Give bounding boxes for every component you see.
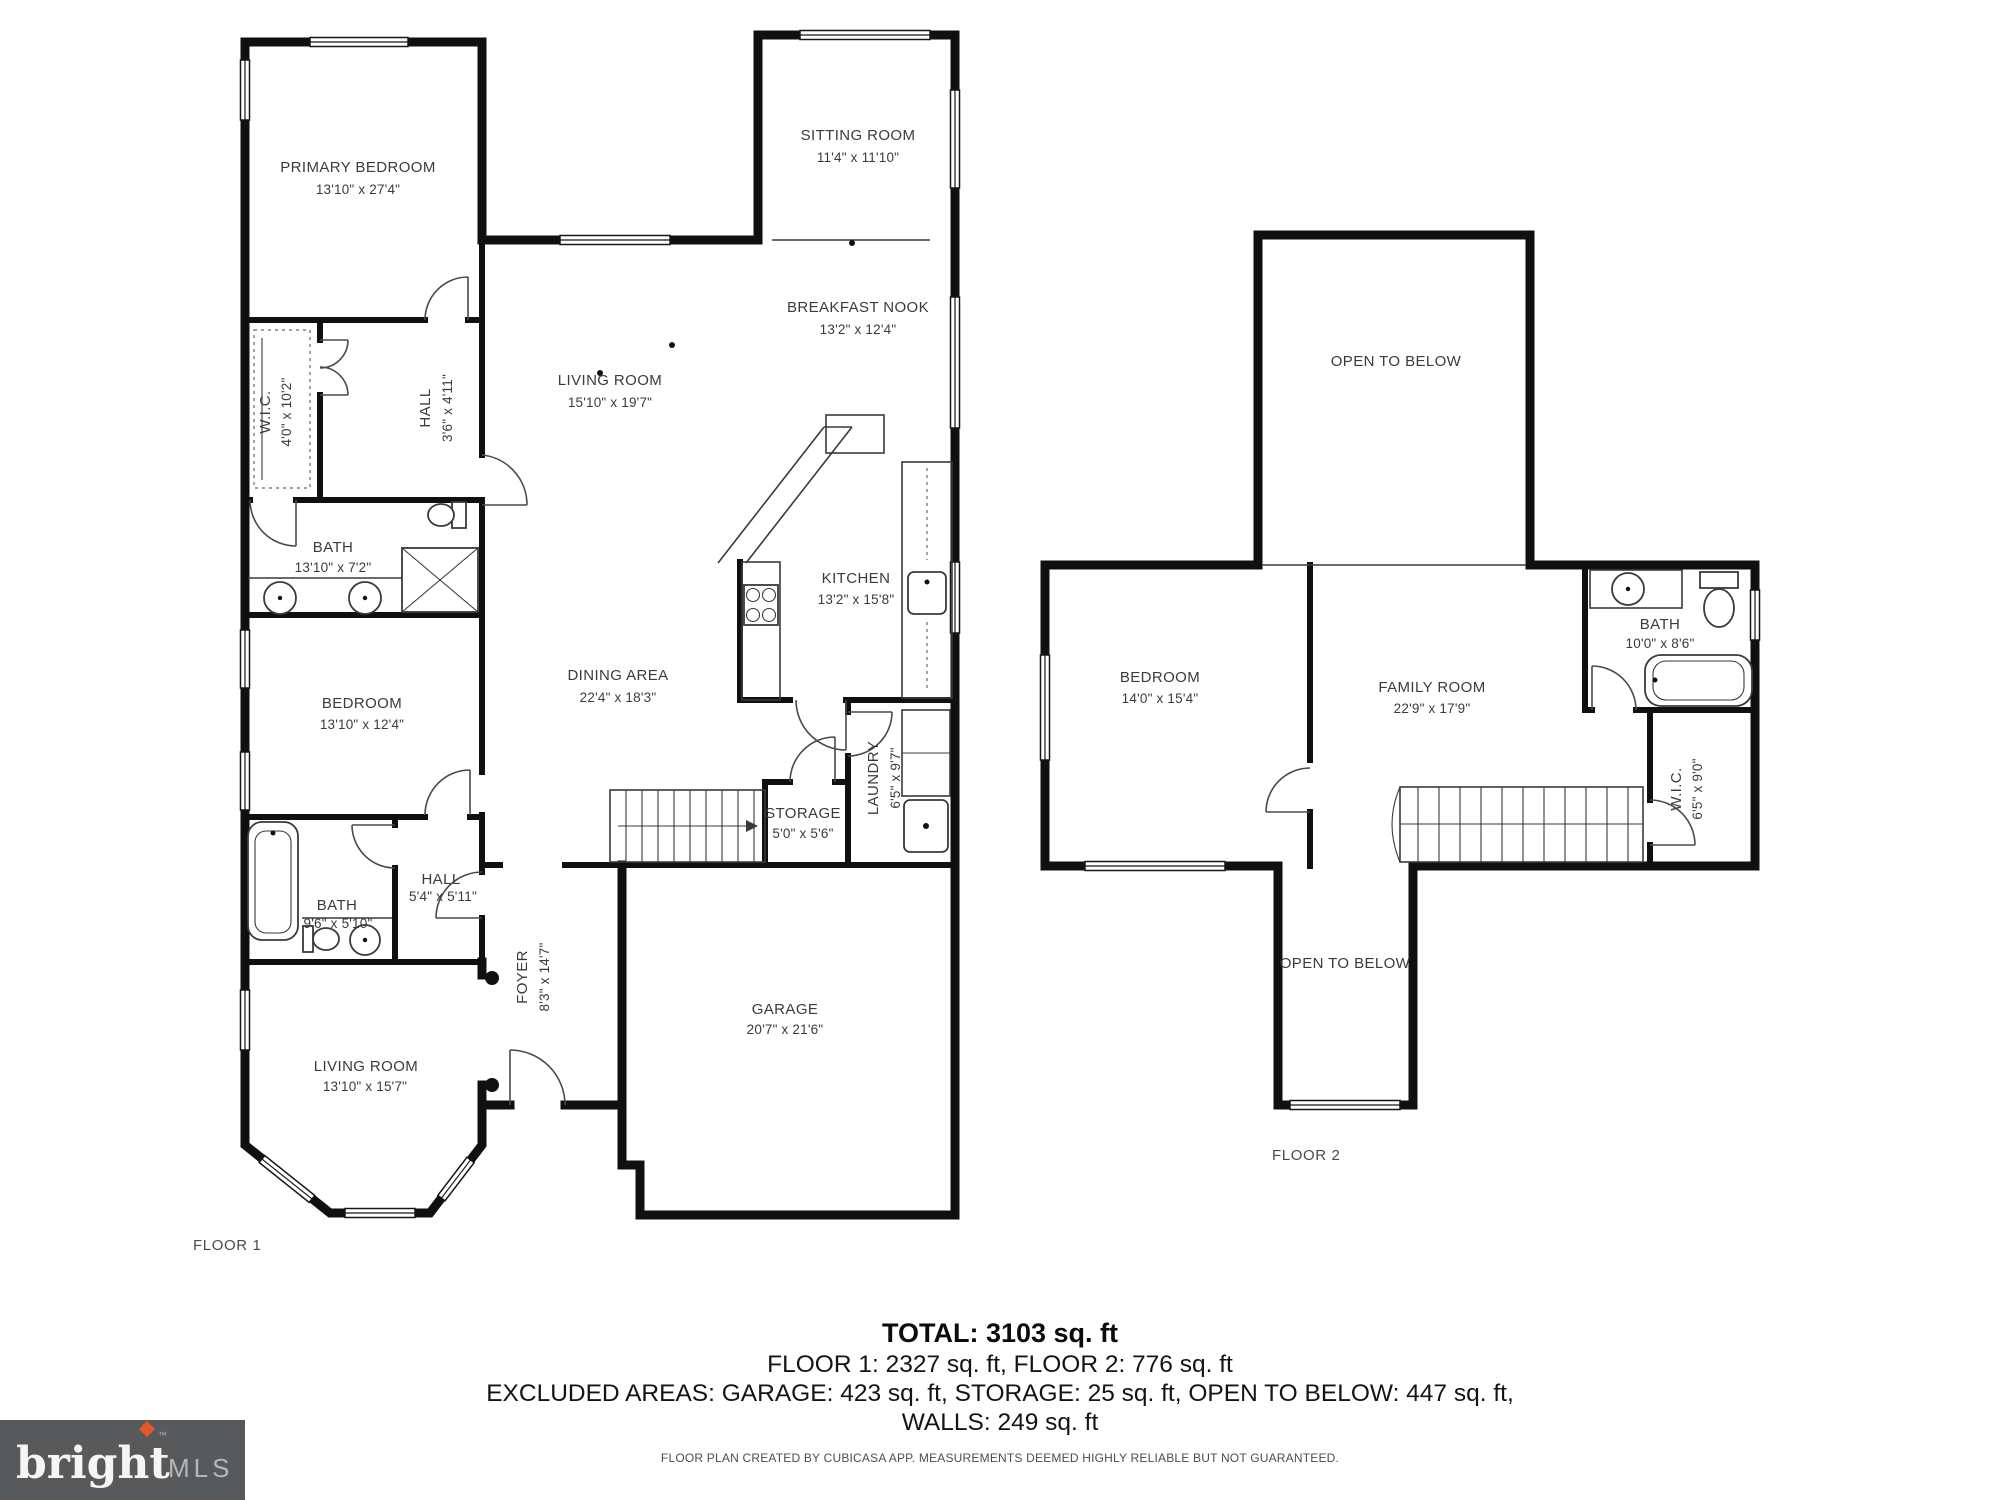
summary-total: TOTAL: 3103 sq. ft	[882, 1318, 1118, 1348]
room-dims-sitting-room: 11'4" x 11'10"	[817, 150, 899, 165]
room-dims-living-room-front: 13'10" x 15'7"	[323, 1079, 407, 1094]
floor1-exterior-walls	[245, 35, 955, 1215]
door-arc	[1592, 666, 1636, 710]
floorplan-svg: PRIMARY BEDROOM 13'10" x 27'4" SITTING R…	[0, 0, 2000, 1500]
kitchen-fixtures	[718, 415, 952, 700]
door-arc	[425, 770, 470, 815]
summary-walls: WALLS: 249 sq. ft	[902, 1409, 1099, 1436]
area-summary: TOTAL: 3103 sq. ft FLOOR 1: 2327 sq. ft,…	[486, 1318, 1514, 1465]
room-label-wic-f2: W.I.C.	[1668, 767, 1685, 810]
door-arc	[796, 700, 846, 750]
opening-post	[485, 1078, 499, 1092]
room-dims-bath-f2: 10'0" x 8'6"	[1626, 636, 1695, 651]
room-label-foyer: FOYER	[514, 950, 531, 1004]
bathtub-symbol	[1645, 655, 1752, 706]
bathtub-symbol	[248, 822, 298, 940]
room-label-bedroom: BEDROOM	[322, 695, 402, 712]
room-label-breakfast-nook: BREAKFAST NOOK	[787, 299, 929, 316]
door-arc-entry	[510, 1050, 565, 1105]
door-arc-double	[320, 340, 348, 395]
room-label-sitting-room: SITTING ROOM	[801, 127, 916, 144]
plan-dot	[849, 240, 855, 246]
logo-brand-text: bright	[16, 1438, 170, 1489]
floor1-plan: PRIMARY BEDROOM 13'10" x 27'4" SITTING R…	[193, 31, 960, 1255]
room-dims-dining-area: 22'4" x 18'3"	[580, 690, 657, 705]
room-label-garage: GARAGE	[752, 1001, 819, 1018]
room-label-primary-bedroom: PRIMARY BEDROOM	[280, 159, 435, 176]
room-dims-breakfast-nook: 13'2" x 12'4"	[820, 322, 897, 337]
stove-symbol	[744, 585, 778, 625]
room-dims-laundry: 6'5" x 9'7"	[888, 747, 903, 808]
room-dims-storage: 5'0" x 5'6"	[772, 826, 833, 841]
room-dims-primary-bedroom: 13'10" x 27'4"	[316, 182, 400, 197]
room-label-family-room: FAMILY ROOM	[1378, 679, 1485, 696]
room-dims-family-room: 22'9" x 17'9"	[1394, 701, 1471, 716]
plan-dot	[669, 342, 675, 348]
door-arc	[790, 737, 835, 782]
room-label-living-room: LIVING ROOM	[558, 372, 662, 389]
logo-mls-text: MLS	[168, 1453, 233, 1483]
room-label-hall-lower: HALL	[421, 871, 460, 888]
summary-excluded: EXCLUDED AREAS: GARAGE: 423 sq. ft, STOR…	[486, 1380, 1514, 1407]
primary-bath-fixtures	[248, 502, 478, 614]
room-label-bedroom-f2: BEDROOM	[1120, 669, 1200, 686]
disclaimer-text: FLOOR PLAN CREATED BY CUBICASA APP. MEAS…	[661, 1451, 1339, 1465]
room-label-kitchen: KITCHEN	[822, 570, 891, 587]
room-dims-hall-upper: 3'6" x 4'11"	[440, 374, 455, 442]
room-dims-kitchen: 13'2" x 15'8"	[818, 592, 895, 607]
range-hood-symbol	[826, 415, 884, 453]
room-label-wic: W.I.C.	[257, 390, 274, 433]
door-arc	[482, 455, 527, 505]
room-dims-bedroom: 13'10" x 12'4"	[320, 717, 404, 732]
room-dims-foyer: 8'3" x 14'7"	[537, 943, 552, 1012]
room-label-bath-f2: BATH	[1640, 616, 1681, 633]
room-label-storage: STORAGE	[765, 805, 841, 822]
logo-tm: ™	[158, 1430, 167, 1440]
floor1-windows	[241, 31, 960, 1218]
room-dims-hall-lower: 5'4" x 5'11"	[409, 889, 477, 904]
room-label-dining-area: DINING AREA	[567, 667, 668, 684]
room-label-bath-primary: BATH	[313, 539, 354, 556]
room-dims-living-room: 15'10" x 19'7"	[568, 395, 652, 410]
room-dims-bath-primary: 13'10" x 7'2"	[295, 560, 372, 575]
stairs-up-symbol	[610, 790, 765, 862]
room-dims-wic: 4'0" x 10'2"	[279, 378, 294, 447]
room-label-laundry: LAUNDRY	[865, 741, 882, 815]
floor1-label: FLOOR 1	[193, 1237, 261, 1254]
floor2-plan: OPEN TO BELOW BEDROOM 14'0" x 15'4" FAMI…	[1041, 235, 1760, 1164]
bright-mls-logo: bright ™ MLS	[0, 1420, 245, 1500]
floor2-stairs-symbol	[1392, 787, 1643, 862]
laundry-fixtures	[902, 710, 950, 852]
room-label-living-room-front: LIVING ROOM	[314, 1058, 418, 1075]
room-label-hall-upper: HALL	[417, 388, 434, 427]
room-dims-garage: 20'7" x 21'6"	[747, 1022, 824, 1037]
room-label-open-to-below-top: OPEN TO BELOW	[1331, 353, 1462, 370]
room-label-bath-lower: BATH	[317, 897, 358, 914]
floor2-label: FLOOR 2	[1272, 1147, 1340, 1164]
door-arc	[1266, 768, 1310, 812]
room-label-open-to-below-bottom: OPEN TO BELOW	[1280, 955, 1411, 972]
summary-floors: FLOOR 1: 2327 sq. ft, FLOOR 2: 776 sq. f…	[767, 1351, 1233, 1378]
room-dims-bath-lower: 9'6" x 5'10"	[304, 916, 373, 931]
room-dims-bedroom-f2: 14'0" x 15'4"	[1122, 691, 1199, 706]
shower-symbol	[402, 548, 478, 612]
kitchen-sink-symbol	[908, 572, 946, 614]
opening-post	[485, 971, 499, 985]
toilet-symbol	[428, 502, 466, 528]
door-arc	[352, 825, 395, 868]
door-arc	[250, 500, 296, 546]
toilet-symbol	[1700, 572, 1738, 627]
door-arc	[425, 277, 468, 320]
room-dims-wic-f2: 6'5" x 9'0"	[1690, 758, 1705, 819]
floor-plan-page: PRIMARY BEDROOM 13'10" x 27'4" SITTING R…	[0, 0, 2000, 1500]
lower-bath-fixtures	[248, 822, 392, 955]
